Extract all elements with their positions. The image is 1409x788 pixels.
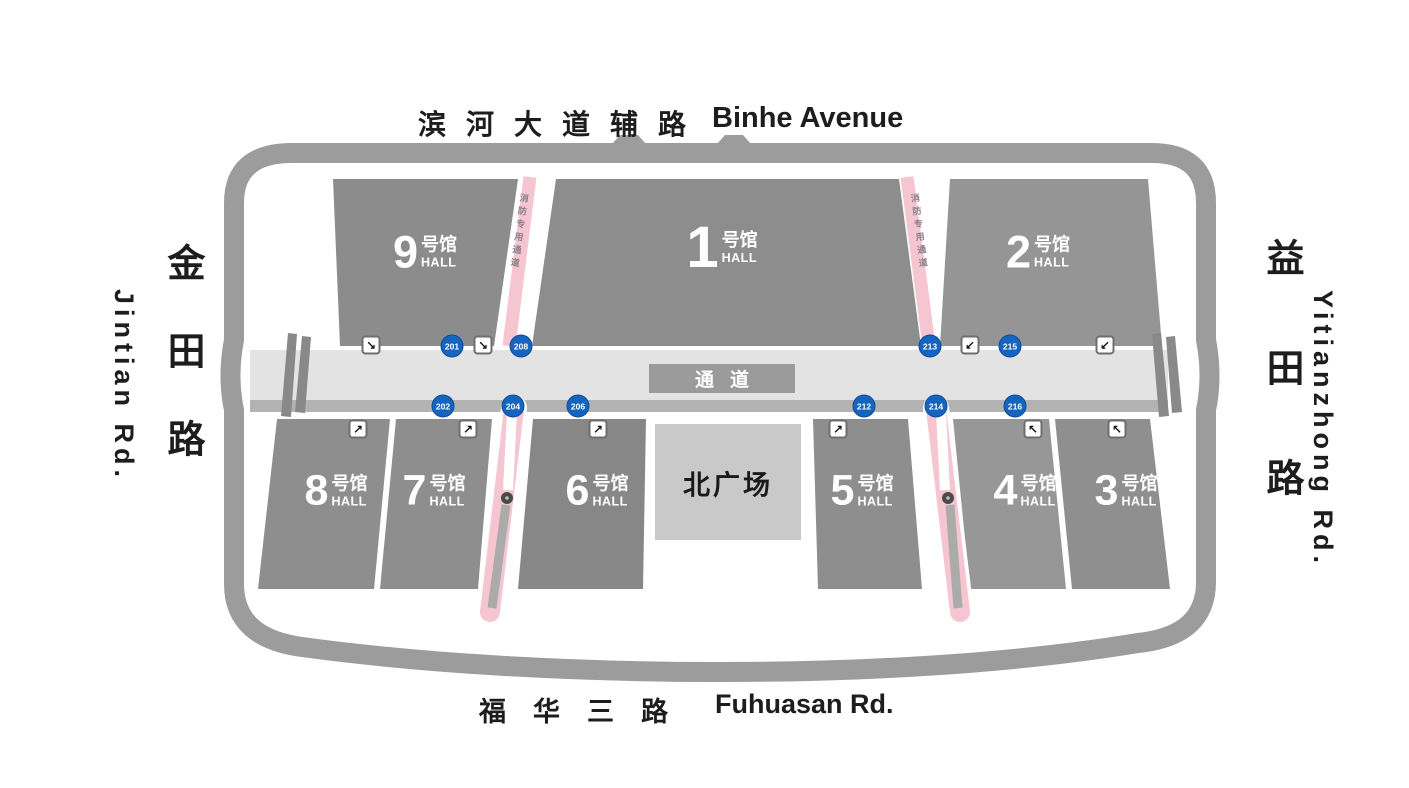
- hall-4-number: 4: [994, 470, 1018, 513]
- hall-8-number: 8: [305, 470, 329, 513]
- hall-2-label: 2 号馆 HALL: [1006, 230, 1070, 275]
- hall-5-label: 5 号馆 HALL: [831, 470, 894, 513]
- fire-lane-south-east-top: [941, 412, 945, 490]
- hall-4-label: 4 号馆 HALL: [994, 470, 1057, 513]
- gate-badge-208: 208: [510, 335, 533, 358]
- hall-9-label: 9 号馆 HALL: [393, 230, 457, 275]
- gate-badge-214: 214: [925, 395, 948, 418]
- hall-6-suffix: 号馆: [592, 473, 628, 494]
- road-left-zh: 金田路: [155, 243, 210, 507]
- road-left-en: Jintian Rd.: [108, 289, 139, 482]
- hall-1-suffix: 号馆: [722, 230, 758, 251]
- hall-9-number: 9: [393, 230, 418, 275]
- hall-8-label: 8 号馆 HALL: [305, 470, 368, 513]
- escalator-icon: ↖: [1024, 420, 1043, 439]
- fire-gate-knob-west-dot: [505, 496, 509, 500]
- road-right-en: Yitianzhong Rd.: [1307, 290, 1338, 568]
- hall-9-word: HALL: [421, 255, 457, 269]
- hall-8-word: HALL: [331, 494, 367, 508]
- escalator-icon: ↗: [589, 420, 608, 439]
- hall-5-word: HALL: [857, 494, 893, 508]
- fire-lane-south-west-top: [508, 412, 512, 490]
- venue-map: 滨河大道辅路 Binhe Avenue 福华三路 Fuhuasan Rd. 金田…: [0, 0, 1409, 788]
- escalator-icon: ↘: [362, 336, 381, 355]
- gate-badge-212: 212: [853, 395, 876, 418]
- hall-4-word: HALL: [1020, 494, 1056, 508]
- hall-7-suffix: 号馆: [429, 473, 465, 494]
- hall-6-label: 6 号馆 HALL: [566, 470, 629, 513]
- gate-badge-213: 213: [919, 335, 942, 358]
- road-right-zh: 益田路: [1254, 238, 1309, 568]
- fire-gate-knob-east-dot: [946, 496, 950, 500]
- hall-8-suffix: 号馆: [331, 473, 367, 494]
- gate-badge-201: 201: [441, 335, 464, 358]
- hall-7-label: 7 号馆 HALL: [403, 470, 466, 513]
- road-top-zh: 滨河大道辅路: [418, 103, 706, 143]
- corridor-label: 通道: [695, 365, 765, 392]
- escalator-icon: ↘: [474, 336, 493, 355]
- hall-1-word: HALL: [722, 251, 758, 265]
- escalator-icon: ↗: [349, 420, 368, 439]
- gate-badge-206: 206: [567, 395, 590, 418]
- hall-3-number: 3: [1095, 470, 1119, 513]
- hall-3-word: HALL: [1121, 494, 1157, 508]
- escalator-icon: ↖: [1108, 420, 1127, 439]
- road-top-en: Binhe Avenue: [712, 102, 903, 135]
- hall-2-word: HALL: [1034, 255, 1070, 269]
- hall-2-suffix: 号馆: [1034, 234, 1070, 255]
- gate-badge-204: 204: [502, 395, 525, 418]
- hall-3-label: 3 号馆 HALL: [1095, 470, 1158, 513]
- escalator-icon: ↗: [829, 420, 848, 439]
- stair-structure-east-2: [1166, 336, 1182, 413]
- gate-badge-202: 202: [432, 395, 455, 418]
- hall-6-word: HALL: [592, 494, 628, 508]
- hall-6-number: 6: [566, 470, 590, 513]
- corridor-label-box: 通道: [649, 364, 795, 393]
- hall-4-suffix: 号馆: [1020, 473, 1056, 494]
- hall-7-word: HALL: [429, 494, 465, 508]
- hall-1-label: 1 号馆 HALL: [686, 219, 757, 277]
- hall-3-suffix: 号馆: [1121, 473, 1157, 494]
- hall-5-number: 5: [831, 470, 855, 513]
- hall-1-number: 1: [686, 219, 718, 277]
- hall-5-suffix: 号馆: [857, 473, 893, 494]
- escalator-icon: ↙: [1096, 336, 1115, 355]
- hall-9-suffix: 号馆: [421, 234, 457, 255]
- hall-7-number: 7: [403, 470, 427, 513]
- hall-2-number: 2: [1006, 230, 1031, 275]
- road-bottom-en: Fuhuasan Rd.: [715, 689, 894, 720]
- escalator-icon: ↙: [961, 336, 980, 355]
- escalator-icon: ↗: [459, 420, 478, 439]
- road-bottom-zh: 福华三路: [479, 690, 695, 729]
- gate-badge-216: 216: [1004, 395, 1027, 418]
- corridor-shadow: [250, 400, 1168, 412]
- gate-badge-215: 215: [999, 335, 1022, 358]
- ring-road-notch-right: [717, 135, 751, 144]
- north-plaza-label: 北广场: [683, 464, 773, 503]
